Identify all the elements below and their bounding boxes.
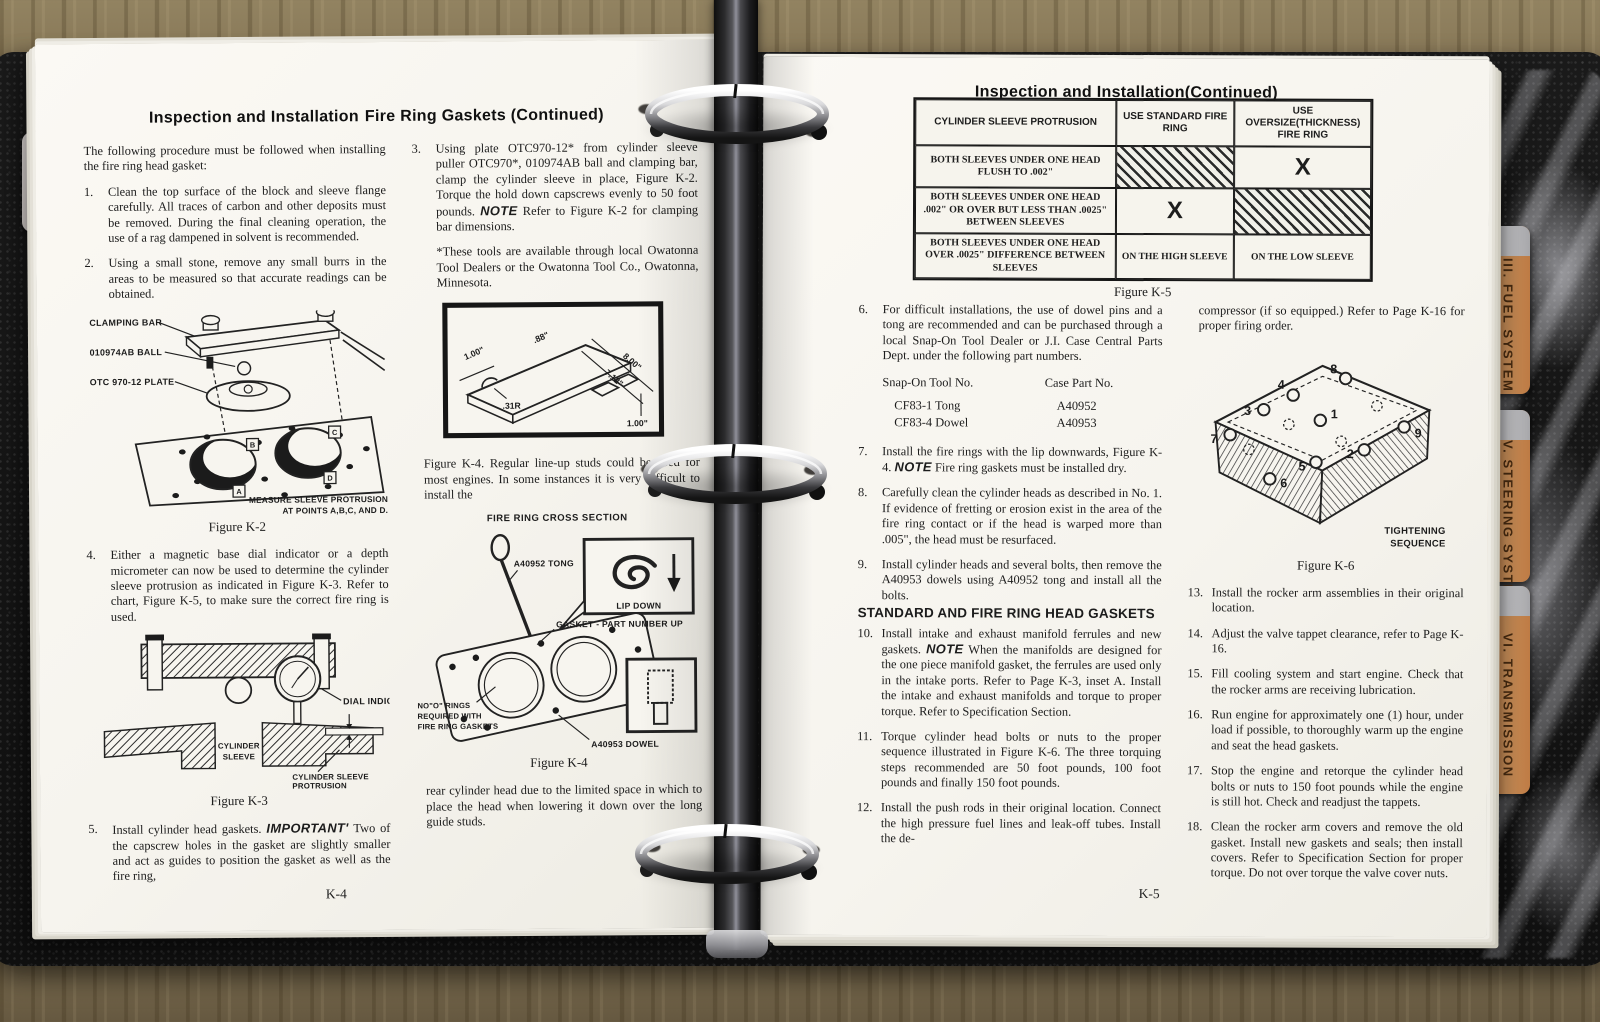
step-4: 4. Either a magnetic base dial indicator… (86, 546, 389, 625)
parts-header-case: Case Part No. (1045, 374, 1163, 392)
tool-footnote: *These tools are available through local… (436, 243, 698, 291)
step-2: 2. Using a small stone, remove any small… (84, 254, 386, 302)
step-18: 18. Clean the rocker arm covers and remo… (1187, 820, 1463, 882)
binder-ring-middle[interactable] (635, 438, 835, 518)
page-number-k4: K-4 (326, 886, 347, 902)
svg-text:6: 6 (1280, 476, 1287, 490)
tab-cap (1486, 586, 1530, 616)
svg-text:SEQUENCE: SEQUENCE (1390, 537, 1445, 548)
k5-header-protrusion: CYLINDER SLEEVE PROTRUSION (915, 99, 1116, 146)
svg-text:1: 1 (1331, 407, 1338, 421)
binder-spine-foot (706, 930, 768, 958)
note-keyword: NOTE (894, 459, 931, 474)
tab-label: III. FUEL SYSTEM (1501, 256, 1516, 394)
svg-text:CYLINDER SLEEVE: CYLINDER SLEEVE (292, 772, 369, 782)
index-tab-fuel-system[interactable]: III. FUEL SYSTEM (1486, 226, 1530, 394)
binder-ring-bottom[interactable] (627, 818, 827, 898)
svg-text:C: C (332, 428, 338, 437)
svg-text:1.00": 1.00" (627, 418, 648, 428)
important-keyword: IMPORTANT' (266, 820, 349, 836)
step-5: 5. Install cylinder head gaskets. IMPORT… (88, 820, 390, 885)
svg-text:.31R: .31R (503, 401, 522, 411)
figure-k4-caption: Figure K-4 (416, 754, 702, 772)
binder-ring-top[interactable] (637, 78, 837, 158)
step-14: 14. Adjust the valve tappet clearance, r… (1187, 626, 1463, 658)
step-12: 12. Install the push rods in their origi… (857, 801, 1161, 848)
figure-k5-caption: Figure K-5 (913, 283, 1373, 301)
svg-text:CYLINDER: CYLINDER (218, 741, 260, 750)
svg-text:3: 3 (1244, 404, 1251, 418)
figure-k3-caption: Figure K-3 (88, 792, 390, 810)
manual-right-page[interactable]: Inspection and Installation(Continued) C… (760, 57, 1489, 938)
svg-text:LIP DOWN: LIP DOWN (616, 601, 661, 611)
k5-header-oversize: USE OVERSIZE(THICKNESS) FIRE RING (1234, 100, 1371, 146)
figure-k4-drawing: A40952 TONG LIP DOWN GASKET - PART NUMBE… (414, 525, 702, 753)
step-9: 9. Install cylinder heads and several bo… (858, 557, 1162, 604)
right-page-column-1: 6. For difficult installations, the use … (857, 302, 1163, 858)
left-page-heading: Inspection and InstallationFire Ring Gas… (35, 106, 717, 129)
svg-text:D: D (327, 474, 333, 483)
right-page-column-2: compressor (if so equipped.) Refer to Pa… (1187, 303, 1465, 892)
heading-fire-ring-gaskets: Fire Ring Gaskets (Continued) (365, 106, 604, 125)
k5-row3-standard: ON THE HIGH SLEEVE (1115, 233, 1234, 279)
k5-row1-condition: BOTH SLEEVES UNDER ONE HEAD FLUSH TO .00… (915, 145, 1116, 188)
svg-text:A: A (236, 487, 242, 496)
manual-left-page[interactable]: Inspection and InstallationFire Ring Gas… (35, 40, 723, 933)
step-11: 11. Torque cylinder head bolts or nuts t… (857, 729, 1161, 792)
step-1: 1. Clean the top surface of the block an… (84, 183, 386, 247)
parts-row-dowel: CF83-4 Dowel (882, 414, 1044, 432)
tab-label: V. STEERING SYSTEM (1501, 440, 1516, 607)
index-tab-steering-system[interactable]: V. STEERING SYSTEM (1486, 410, 1530, 582)
note-keyword: NOTE (926, 641, 963, 656)
svg-text:010974AB BALL: 010974AB BALL (90, 347, 163, 358)
tab-cap (1486, 226, 1530, 256)
svg-text:TIGHTENING: TIGHTENING (1384, 524, 1445, 535)
svg-text:NO"O" RINGS: NO"O" RINGS (417, 701, 470, 710)
svg-text:9: 9 (1415, 426, 1422, 440)
k5-row3-oversize: ON THE LOW SLEEVE (1234, 234, 1371, 280)
k5-row1-standard-na (1116, 146, 1235, 188)
k5-row2-condition: BOTH SLEEVES UNDER ONE HEAD .002" OR OVE… (915, 187, 1116, 233)
svg-text:GASKET - PART NUMBER UP: GASKET - PART NUMBER UP (556, 619, 683, 630)
svg-text:8: 8 (1330, 362, 1337, 376)
tab-cap (1486, 410, 1530, 440)
step-6: 6. For difficult installations, the use … (858, 302, 1162, 365)
left-page-column-1: The following procedure must be followed… (84, 142, 391, 895)
parts-row-dowel-no: A40953 (1045, 415, 1163, 433)
svg-text:A40952 TONG: A40952 TONG (514, 558, 574, 568)
step-7: 7. Install the fire rings with the lip d… (858, 444, 1162, 477)
step-8: 8. Carefully clean the cylinder heads as… (858, 485, 1162, 548)
svg-text:CLAMPING BAR: CLAMPING BAR (89, 318, 162, 329)
step-15: 15. Fill cooling system and start engine… (1187, 667, 1463, 699)
k5-header-standard: USE STANDARD FIRE RING (1116, 100, 1235, 146)
svg-text:REQUIRED WITH: REQUIRED WITH (417, 712, 481, 721)
svg-text:4: 4 (1278, 377, 1285, 391)
figure-k2-drawing: CLAMPING BAR 010974AB BALL OTC 970-12 PL… (85, 310, 388, 508)
k5-row2-oversize-na (1234, 188, 1371, 234)
parts-header-snapon: Snap-On Tool No. (882, 374, 1044, 392)
svg-text:2: 2 (1347, 447, 1354, 461)
k5-row2-standard-x: X (1116, 188, 1235, 234)
svg-text:DIAL INDICATOR: DIAL INDICATOR (343, 696, 390, 707)
svg-text:SLEEVE: SLEEVE (223, 752, 255, 761)
figure-k2-caption: Figure K-2 (86, 518, 388, 536)
index-tab-transmission[interactable]: VI. TRANSMISSION (1486, 586, 1530, 794)
step-16: 16. Run engine for approximately one (1)… (1187, 707, 1463, 754)
section-subheading: STANDARD AND FIRE RING HEAD GASKETS (858, 605, 1162, 623)
step-10: 10. Install intake and exhaust manifold … (857, 626, 1161, 720)
photo-of-open-service-manual: { "binder": { "tabs": [ {"label": "III. … (0, 0, 1600, 1022)
parts-table: Snap-On Tool No. Case Part No. CF83-1 To… (882, 374, 1162, 433)
figure-k3-drawing: DIAL INDICATOR CYLINDER SLEEVE CYLINDER … (87, 633, 390, 791)
tab-label: VI. TRANSMISSION (1501, 616, 1516, 794)
intro-paragraph: The following procedure must be followed… (84, 142, 386, 175)
heading-inspection-installation: Inspection and Installation (149, 108, 359, 126)
parts-row-tong-no: A40952 (1045, 398, 1163, 416)
step-12-continuation: compressor (if so equipped.) Refer to Pa… (1199, 303, 1465, 335)
k5-row1-oversize-x: X (1234, 146, 1371, 188)
k5-row3-condition: BOTH SLEEVES UNDER ONE HEAD OVER .0025" … (915, 233, 1116, 279)
note-keyword: NOTE (480, 203, 517, 218)
clamping-bar-dimension-inset: 1.00" .88" 8.00" 7.12" .31R 1.00" (441, 299, 666, 447)
svg-text:OTC 970-12 PLATE: OTC 970-12 PLATE (90, 377, 175, 388)
svg-text:B: B (250, 441, 256, 450)
step-17: 17. Stop the engine and retorque the cyl… (1187, 763, 1463, 810)
svg-text:FIRE RING GASKETS: FIRE RING GASKETS (418, 722, 499, 732)
svg-text:A40953 DOWEL: A40953 DOWEL (591, 739, 659, 749)
figure-k6-drawing: 3 4 8 1 7 9 2 5 6 TIGHTENING SEQUENCE (1188, 344, 1451, 555)
svg-text:7: 7 (1211, 432, 1218, 446)
figure-k5-table: CYLINDER SLEEVE PROTRUSION USE STANDARD … (913, 97, 1374, 301)
parts-row-tong: CF83-1 Tong (882, 397, 1044, 415)
page-number-k5: K-5 (1139, 886, 1160, 902)
svg-text:PROTRUSION: PROTRUSION (292, 781, 347, 790)
svg-text:5: 5 (1298, 459, 1305, 473)
step-13: 13. Install the rocker arm assemblies in… (1188, 585, 1464, 617)
figure-k6-caption: Figure K-6 (1188, 557, 1464, 574)
